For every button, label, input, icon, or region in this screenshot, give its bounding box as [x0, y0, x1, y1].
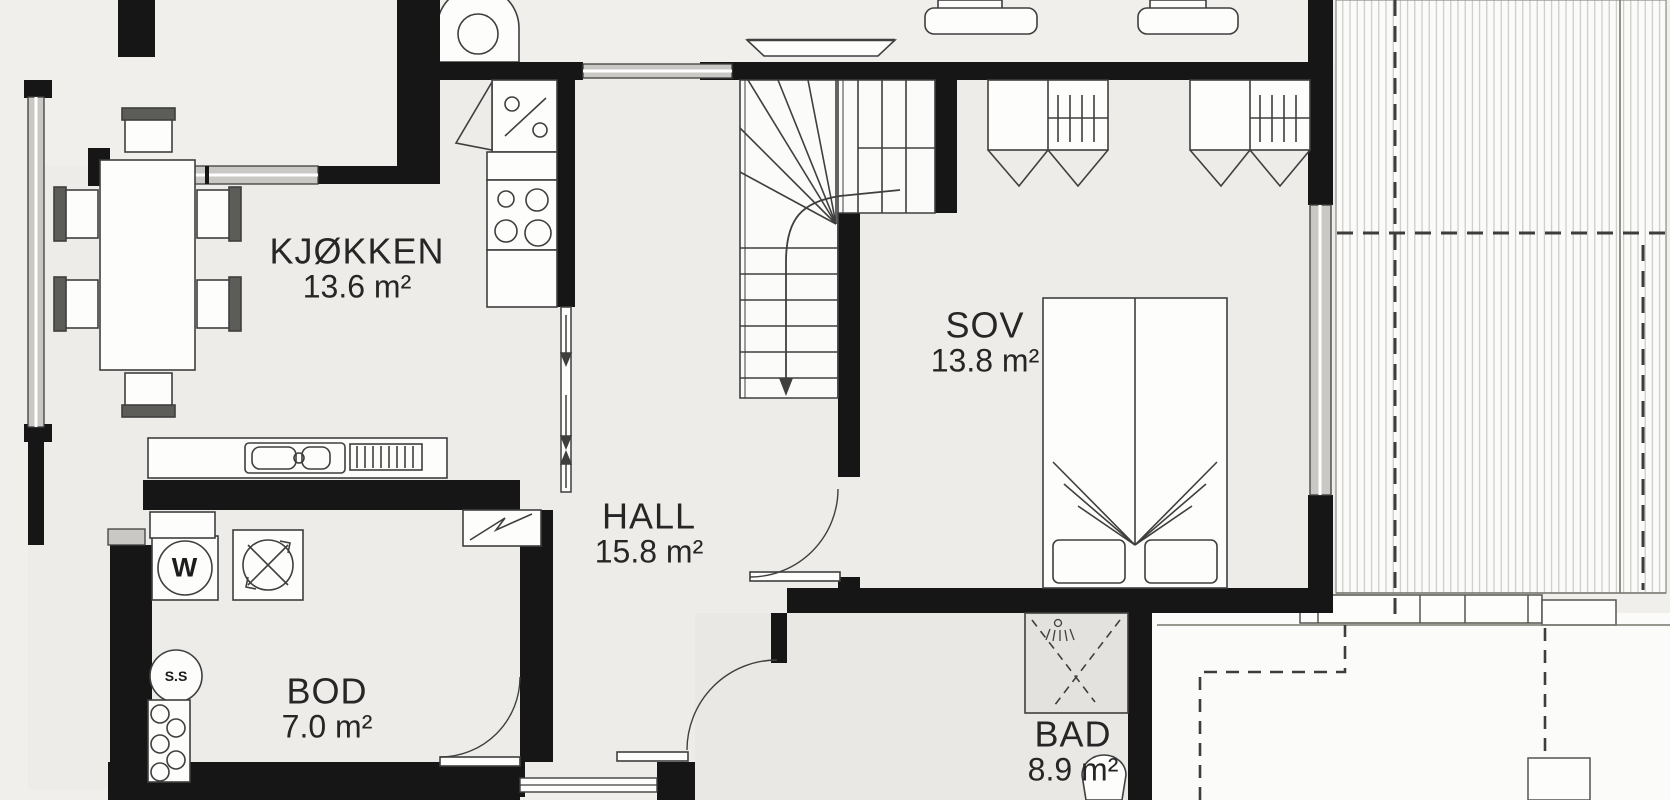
terrace-sofa-right [1138, 0, 1238, 34]
dining-chair [122, 108, 175, 152]
floor-plan-drawing [0, 0, 1670, 800]
hall-name: HALL [595, 497, 703, 535]
washing-machine-label: W [172, 553, 198, 584]
room-label-storage: BOD 7.0 m² [282, 672, 373, 743]
outdoor-step [1528, 758, 1590, 800]
floor-plan: KJØKKEN 13.6 m² SOV 13.8 m² HALL 15.8 m²… [0, 0, 1670, 800]
tumble-dryer [233, 530, 303, 600]
counter [487, 250, 557, 307]
deck-step-band [1300, 595, 1616, 625]
room-label-hall: HALL 15.8 m² [595, 497, 703, 568]
dining-table [100, 160, 195, 370]
pillow [1053, 540, 1125, 583]
room-label-kitchen: KJØKKEN 13.6 m² [269, 232, 444, 303]
shower [1025, 613, 1128, 713]
pillow [1145, 540, 1217, 583]
entrance-door-sill [520, 778, 657, 792]
double-bed [1043, 298, 1227, 588]
bedroom-area: 13.8 m² [931, 344, 1039, 378]
dining-chair [197, 277, 241, 331]
terrace-bench [747, 40, 895, 56]
grill [437, 0, 519, 62]
bathroom-area: 8.9 m² [1028, 753, 1119, 787]
dining-chair [122, 373, 175, 417]
floor-drain-label: S.S [165, 668, 188, 684]
terrace-sofa-left [925, 0, 1037, 34]
dining-chair [197, 187, 241, 241]
bedroom-name: SOV [931, 306, 1039, 344]
room-label-bedroom: SOV 13.8 m² [931, 306, 1039, 377]
storage-area: 7.0 m² [282, 710, 373, 744]
terrace-furniture [437, 0, 1238, 62]
dining-chair [54, 277, 98, 331]
stove [487, 180, 557, 250]
bathroom-name: BAD [1028, 715, 1119, 753]
sliding-door-track [561, 307, 571, 492]
dining-chair [54, 187, 98, 241]
room-label-bathroom: BAD 8.9 m² [1028, 715, 1119, 786]
kitchen-name: KJØKKEN [269, 232, 444, 270]
corner-window [108, 529, 145, 545]
kitchen-area: 13.6 m² [269, 270, 444, 304]
deck-terrace [1336, 0, 1666, 593]
sink-counter [148, 438, 447, 478]
counter [487, 152, 557, 180]
shelf-cabinet [150, 512, 215, 538]
water-heater [148, 700, 190, 782]
fuse-box [463, 510, 541, 546]
hall-area: 15.8 m² [595, 535, 703, 569]
storage-name: BOD [282, 672, 373, 710]
